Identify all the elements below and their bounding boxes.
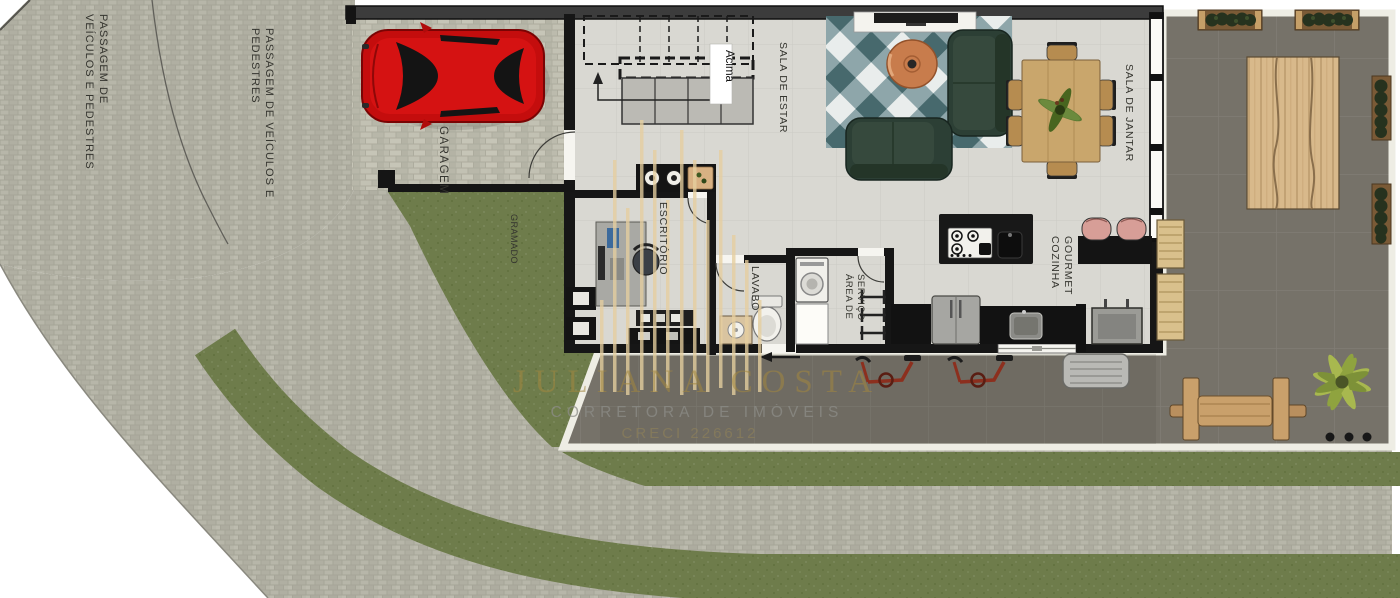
kitchen-cabinet <box>891 304 931 344</box>
coffee-table <box>887 40 937 88</box>
gym-bench <box>1063 354 1129 388</box>
road <box>0 0 355 281</box>
planter <box>1295 10 1359 30</box>
label-lawn: GRAMADO <box>509 214 519 264</box>
label-kitchen: COZINHA GOURMET <box>1049 236 1074 295</box>
sliding-door <box>998 344 1076 353</box>
watermark-creci: CRECI 226612 <box>622 425 759 442</box>
label-living-room: SALA DE ESTAR <box>777 42 789 133</box>
red-car <box>362 22 550 130</box>
kitchen-island <box>939 214 1033 264</box>
service-west-wall <box>786 248 795 352</box>
deck-table <box>1247 57 1339 209</box>
planter <box>1372 76 1391 140</box>
washing-machine <box>796 258 828 302</box>
sofa <box>846 118 952 180</box>
label-service-area: ÁREA DE SERVIÇO <box>843 274 866 323</box>
planter <box>1372 184 1391 244</box>
watermark-title: CORRETORA DE IMÓVEIS <box>551 404 844 421</box>
doormat <box>1157 220 1184 340</box>
sink-counter <box>980 306 1076 344</box>
dining-room <box>1006 42 1116 179</box>
stepping-stones <box>1326 433 1372 442</box>
garage-south-wall <box>388 184 574 192</box>
sofa <box>948 30 1012 136</box>
label-stairs-up: Acima <box>723 50 735 83</box>
monitor <box>598 246 605 280</box>
tv <box>874 13 958 23</box>
label-dining-room: SALA DE JANTAR <box>1123 64 1135 162</box>
label-powder-room: LAVABO <box>749 266 761 311</box>
refrigerator <box>932 296 980 344</box>
service-counter <box>796 304 828 344</box>
floor-plan-drawing: PASSAGEM DE VEÍCULOS E PEDESTRES PASSAGE… <box>0 0 1400 598</box>
label-office: ESCRITÓRIO <box>657 202 670 275</box>
planter <box>1198 10 1262 30</box>
prep-counter <box>636 164 716 192</box>
floor-plan-canvas: PASSAGEM DE VEÍCULOS E PEDESTRES PASSAGE… <box>0 0 1400 598</box>
watermark-name: JULIANA COSTA <box>513 364 881 400</box>
label-garage: GARAGEM <box>437 126 449 195</box>
north-wall <box>346 6 1163 19</box>
cutting-board <box>688 167 713 189</box>
